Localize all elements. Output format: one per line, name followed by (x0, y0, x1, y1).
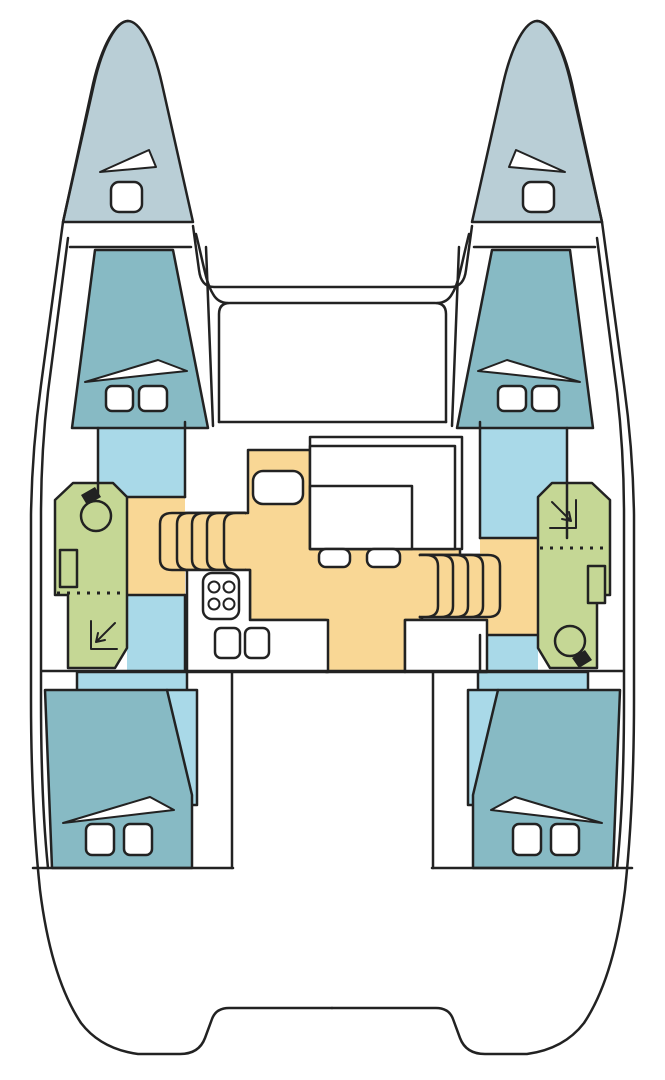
sink (245, 628, 269, 658)
port-sidedeck-edge (196, 234, 228, 303)
port-forward-cabin (72, 250, 208, 428)
washbasin (588, 566, 605, 603)
pillow (106, 386, 133, 411)
forward-cockpit-wall (219, 303, 446, 422)
port-companionway-stairs (160, 513, 245, 570)
burner (209, 599, 220, 610)
stool (319, 549, 350, 567)
burner (224, 582, 235, 593)
double-berth (45, 690, 192, 868)
dinette (310, 437, 462, 567)
starboard-sidedeck-edge (437, 234, 469, 303)
saloon-table (310, 486, 412, 549)
sink (215, 628, 240, 658)
stool (367, 549, 400, 567)
pillow (124, 824, 152, 855)
starboard-forward-cabin (457, 250, 593, 428)
pillow (139, 386, 167, 411)
starboard-bow-locker (472, 21, 602, 222)
burner (224, 599, 235, 610)
port-aft-cabin (45, 690, 192, 868)
port-head (55, 483, 127, 668)
pillow (551, 824, 579, 855)
stove-4-burner (203, 573, 239, 619)
deck-hatch (111, 182, 142, 212)
starboard-companionway-stairs (420, 555, 500, 617)
stair-step (224, 513, 245, 570)
deck-hatch (523, 182, 554, 212)
starboard-aft-cabin (473, 690, 620, 868)
pillow (532, 386, 559, 411)
port-bow-locker (63, 21, 193, 222)
catamaran-floor-plan (0, 0, 665, 1080)
double-berth (473, 690, 620, 868)
stair-step (420, 555, 438, 617)
toilet (555, 626, 585, 656)
chart-table (405, 620, 487, 672)
washbasin (60, 550, 77, 587)
pillow (86, 824, 114, 855)
burner (209, 582, 220, 593)
trampoline-beam (193, 226, 472, 287)
pillow (498, 386, 526, 411)
toilet (81, 501, 111, 531)
catamaran-floor-plan-page (0, 0, 665, 1080)
starboard-head (538, 483, 610, 668)
pillow (513, 824, 541, 855)
galley-forward-unit (253, 471, 303, 504)
